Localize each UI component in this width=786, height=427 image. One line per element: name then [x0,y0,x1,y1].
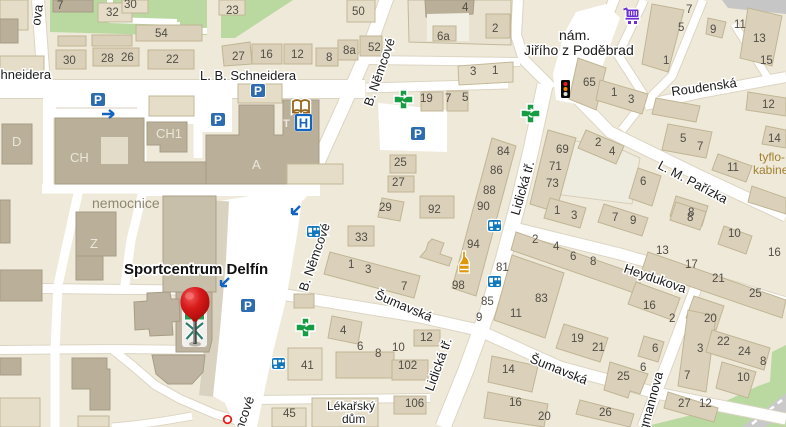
svg-text:17: 17 [685,259,698,271]
svg-text:7: 7 [697,141,703,153]
svg-text:kabine: kabine [753,163,786,177]
svg-text:P: P [244,299,252,313]
svg-text:16: 16 [260,49,273,61]
svg-text:5: 5 [680,133,686,145]
svg-text:25: 25 [394,157,407,169]
svg-text:14: 14 [502,364,515,376]
svg-text:7: 7 [401,281,407,293]
svg-text:102: 102 [398,360,417,372]
svg-text:23: 23 [226,5,239,17]
svg-text:P: P [94,93,102,107]
svg-text:tyflo-: tyflo- [759,150,785,164]
svg-text:nám.: nám. [559,27,590,43]
svg-text:4: 4 [553,241,560,253]
svg-text:12: 12 [699,398,712,410]
svg-text:7: 7 [445,93,451,105]
svg-text:10: 10 [737,372,750,384]
svg-text:6a: 6a [437,31,450,43]
svg-text:30: 30 [63,55,76,67]
svg-text:1: 1 [492,65,498,77]
svg-text:10: 10 [728,228,741,240]
svg-text:16: 16 [643,300,656,312]
svg-text:6: 6 [640,362,646,374]
svg-text:A: A [252,157,261,172]
svg-text:P: P [414,127,422,141]
svg-text:3: 3 [365,264,371,276]
svg-text:2: 2 [669,313,675,325]
svg-text:3: 3 [571,210,577,222]
svg-text:29: 29 [379,202,392,214]
svg-text:12: 12 [762,99,775,111]
svg-text:5: 5 [678,22,684,34]
svg-text:Z: Z [90,236,98,251]
svg-text:106: 106 [405,398,424,410]
svg-text:P: P [254,84,262,98]
svg-text:90: 90 [477,201,490,213]
svg-text:22: 22 [166,54,179,66]
svg-text:16: 16 [509,397,522,409]
svg-text:13: 13 [753,33,766,45]
svg-text:8: 8 [590,256,596,268]
svg-text:98: 98 [452,280,465,292]
svg-text:45: 45 [283,408,296,420]
svg-text:9: 9 [476,312,482,324]
svg-text:20: 20 [538,411,551,423]
svg-text:9: 9 [630,215,636,227]
svg-text:1: 1 [348,259,354,271]
svg-text:3: 3 [628,94,634,106]
svg-text:27: 27 [392,177,405,189]
svg-text:P: P [214,113,222,127]
svg-text:26: 26 [599,407,612,419]
svg-text:41: 41 [301,360,314,372]
svg-text:2: 2 [492,23,498,35]
svg-text:10: 10 [392,342,405,354]
svg-text:8a: 8a [343,45,356,57]
svg-text:2: 2 [595,137,601,149]
svg-text:1: 1 [611,87,617,99]
svg-text:24: 24 [738,346,751,358]
svg-text:26: 26 [121,52,134,64]
svg-text:7: 7 [612,212,618,224]
svg-text:6: 6 [640,176,646,188]
svg-text:CH: CH [70,150,89,165]
svg-text:92: 92 [428,204,441,216]
svg-text:chneidera: chneidera [0,67,52,82]
svg-text:32: 32 [106,7,119,19]
svg-text:nemocnice: nemocnice [92,195,160,211]
svg-text:4: 4 [609,146,616,158]
svg-text:Sportcentrum Delfín: Sportcentrum Delfín [124,261,268,278]
svg-text:19: 19 [420,93,433,105]
svg-text:4: 4 [462,2,469,14]
svg-text:Lékařský: Lékařský [327,399,375,413]
svg-text:6: 6 [357,341,363,353]
svg-text:65: 65 [583,77,596,89]
svg-text:86: 86 [490,165,503,177]
svg-text:8: 8 [375,348,381,360]
svg-text:16: 16 [768,247,781,259]
svg-text:3: 3 [470,66,476,78]
svg-text:25: 25 [749,288,762,300]
svg-text:6: 6 [570,251,576,263]
svg-text:30: 30 [124,0,137,11]
svg-text:33: 33 [355,232,368,244]
svg-text:1: 1 [554,205,560,217]
svg-text:52: 52 [368,42,381,54]
svg-text:88: 88 [483,185,496,197]
svg-text:94: 94 [467,239,480,251]
svg-text:11: 11 [734,19,746,31]
svg-text:21: 21 [712,273,725,285]
svg-text:13: 13 [656,245,669,257]
svg-text:7: 7 [57,0,63,12]
svg-text:21: 21 [592,342,605,354]
svg-text:D: D [12,134,21,149]
svg-text:CH1: CH1 [156,126,182,141]
svg-text:19: 19 [571,333,584,345]
svg-text:H: H [299,116,308,131]
svg-text:L. B. Schneidera: L. B. Schneidera [200,68,297,83]
svg-text:27: 27 [232,51,245,63]
svg-text:83: 83 [535,293,548,305]
svg-text:54: 54 [155,28,168,40]
svg-text:50: 50 [352,6,365,18]
svg-text:7: 7 [684,370,690,382]
svg-text:2: 2 [532,234,538,246]
svg-text:1: 1 [663,55,669,67]
svg-text:81: 81 [496,262,509,274]
svg-text:28: 28 [101,53,114,65]
svg-text:11: 11 [510,308,522,320]
svg-text:12: 12 [420,332,433,344]
svg-text:85: 85 [481,296,494,308]
svg-text:71: 71 [549,161,562,173]
svg-text:15: 15 [760,55,773,67]
svg-text:11: 11 [727,162,739,174]
svg-text:8: 8 [760,356,766,368]
svg-text:5: 5 [462,92,468,104]
svg-text:T: T [283,118,290,130]
svg-text:22: 22 [717,336,730,348]
svg-text:3: 3 [697,343,703,355]
svg-text:27: 27 [678,398,691,410]
svg-text:dům: dům [342,412,365,426]
svg-text:8: 8 [326,52,332,64]
svg-text:84: 84 [497,146,510,158]
svg-text:73: 73 [546,178,559,190]
svg-text:8: 8 [687,212,693,224]
svg-text:Jiřího z Poděbrad: Jiřího z Poděbrad [524,42,634,58]
svg-text:14: 14 [768,133,781,145]
svg-text:4: 4 [340,325,347,337]
svg-text:69: 69 [556,144,569,156]
svg-text:6: 6 [652,343,658,355]
svg-text:12: 12 [291,49,304,61]
svg-text:25: 25 [617,371,630,383]
svg-text:20: 20 [704,313,717,325]
svg-text:ova: ova [28,3,46,27]
svg-text:9: 9 [710,24,716,36]
svg-text:7: 7 [686,4,692,16]
